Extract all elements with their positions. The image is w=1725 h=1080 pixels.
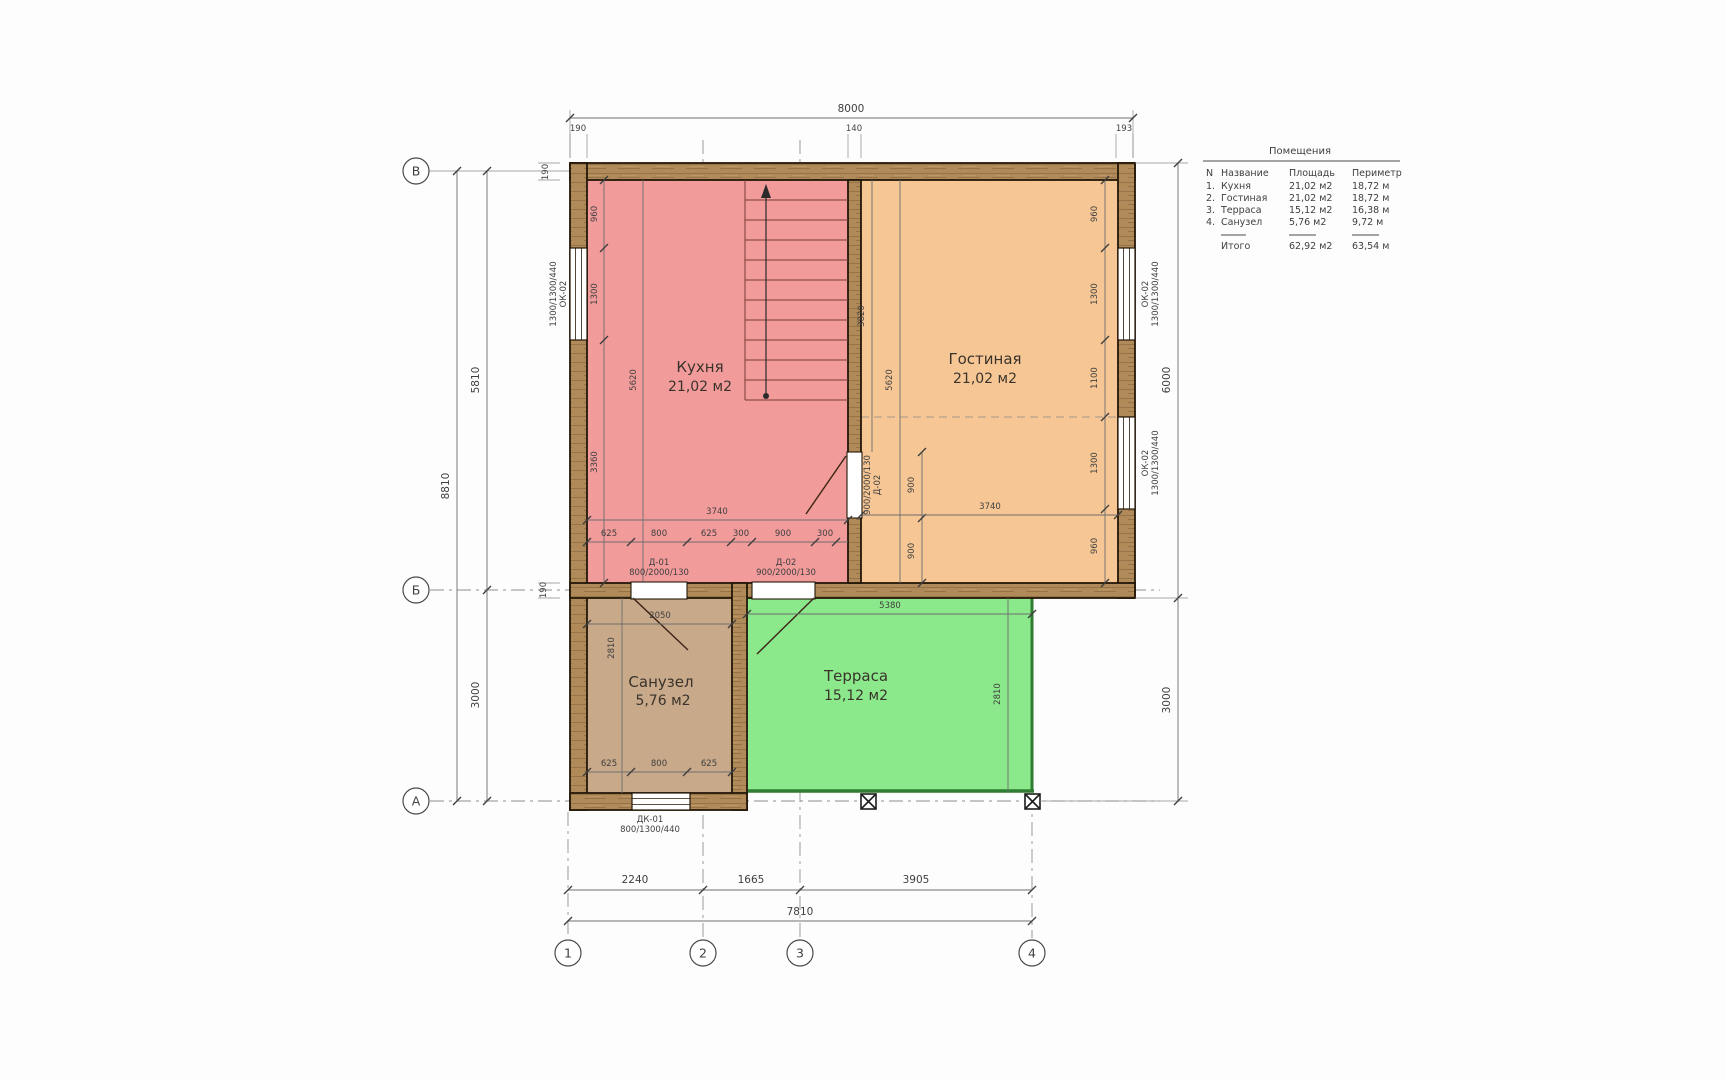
table-row: 3. Терраса 15,12 м2 16,38 м	[1206, 205, 1389, 216]
svg-text:3.: 3.	[1206, 205, 1215, 216]
terrace-columns	[861, 794, 1040, 809]
door-bath-size: 800/2000/130	[629, 568, 689, 578]
svg-text:21,02 м2: 21,02 м2	[1289, 181, 1332, 192]
dim-right-6000: 6000	[1161, 367, 1173, 394]
window-bath-mark: ДК-01	[637, 815, 664, 825]
floor-plan-drawing: 8000 190 140 193 8810 5810 3000 190 190	[0, 0, 1725, 1080]
svg-text:15,12 м2: 15,12 м2	[1289, 205, 1332, 216]
dim-k-1300: 1300	[590, 283, 600, 305]
terrace-area: 15,12 м2	[824, 688, 888, 704]
dim-b-2810: 2810	[607, 637, 617, 659]
bathroom-name: Санузел	[628, 673, 693, 691]
window-bathroom	[632, 793, 690, 810]
svg-text:1.: 1.	[1206, 181, 1215, 192]
dim-k-3740: 3740	[706, 507, 728, 517]
table-col-perimeter: Периметр	[1352, 168, 1402, 179]
dimensions-left: 8810 5810 3000 190 190	[440, 163, 560, 805]
column-post-icon	[861, 794, 876, 809]
window-right-bottom-size: 1300/1300/440	[1151, 430, 1161, 495]
window-bath-size: 800/1300/440	[620, 825, 680, 835]
rooms-table: Помещения N Название Площадь Периметр 1.…	[1203, 146, 1402, 252]
dim-t-2810: 2810	[993, 683, 1003, 705]
table-row: 4. Санузел 5,76 м2 9,72 м	[1206, 217, 1383, 228]
dim-r-1300a: 1300	[1090, 283, 1100, 305]
dim-r-960b: 960	[1090, 538, 1100, 554]
dim-k-625a: 625	[601, 529, 617, 539]
dim-bot-7810: 7810	[787, 906, 814, 918]
window-right-top-mark: ОК-02	[1141, 281, 1151, 308]
svg-text:9,72 м: 9,72 м	[1352, 217, 1383, 228]
kitchen-area: 21,02 м2	[668, 379, 732, 395]
dim-r-1300b: 1300	[1090, 452, 1100, 474]
table-total-perimeter: 63,54 м	[1352, 241, 1389, 252]
table-row: 2. Гостиная 21,02 м2 18,72 м	[1206, 193, 1389, 204]
window-right-bottom-mark: ОК-02	[1141, 450, 1151, 477]
terrace-name: Терраса	[823, 667, 888, 685]
window-right-top-size: 1300/1300/440	[1151, 261, 1161, 326]
axis-row-top-label: В	[412, 164, 421, 179]
dim-k-960: 960	[590, 206, 600, 222]
svg-text:21,02 м2: 21,02 м2	[1289, 193, 1332, 204]
dim-k-5620: 5620	[629, 369, 639, 391]
dim-right-3000: 3000	[1161, 687, 1173, 714]
door-living-mark: Д-02	[873, 475, 883, 496]
axis-row-bot-label: А	[412, 794, 421, 809]
wall-right	[1118, 163, 1135, 598]
dim-b-625a: 625	[601, 759, 617, 769]
svg-text:Кухня: Кухня	[1221, 181, 1251, 192]
dim-l-900b: 900	[907, 543, 917, 559]
dim-b-2050: 2050	[649, 611, 671, 621]
dim-r-1100: 1100	[1090, 367, 1100, 389]
axis-row-mid-label: Б	[412, 583, 421, 598]
door-terrace-mark: Д-02	[776, 558, 797, 568]
door-bath-mark: Д-01	[649, 558, 670, 568]
dim-t-5380: 5380	[879, 601, 901, 611]
window-right-top	[1118, 248, 1135, 340]
dim-l-3740: 3740	[979, 502, 1001, 512]
axis-col-2-label: 2	[699, 946, 707, 961]
floor-plan-sheet: 8000 190 140 193 8810 5810 3000 190 190	[0, 0, 1725, 1080]
svg-text:18,72 м: 18,72 м	[1352, 181, 1389, 192]
dim-top-193: 193	[1116, 124, 1132, 134]
living-area: 21,02 м2	[953, 371, 1017, 387]
dim-left-190-mid: 190	[539, 582, 549, 598]
table-title: Помещения	[1269, 146, 1331, 157]
door-terrace-size: 900/2000/130	[756, 568, 816, 578]
wall-partition-kitchen-living	[848, 180, 861, 583]
living-name: Гостиная	[948, 350, 1021, 368]
window-right-bottom	[1118, 417, 1135, 509]
axis-col-4-label: 4	[1028, 946, 1036, 961]
svg-text:Терраса: Терраса	[1220, 205, 1262, 216]
dim-left-3000: 3000	[470, 682, 482, 709]
terrace-room	[747, 598, 1032, 791]
table-col-name: Название	[1221, 168, 1269, 179]
dim-left-8810: 8810	[440, 473, 452, 500]
column-post-icon	[1025, 794, 1040, 809]
dim-k-800: 800	[651, 529, 667, 539]
table-col-area: Площадь	[1289, 168, 1335, 179]
dim-left-190-top: 190	[541, 164, 551, 180]
dim-k-625b: 625	[701, 529, 717, 539]
dim-l-3820: 3820	[857, 305, 867, 327]
dim-k-300a: 300	[733, 529, 749, 539]
dim-bot-2240: 2240	[622, 874, 649, 886]
dim-bot-3905: 3905	[903, 874, 930, 886]
table-total-row: Итого 62,92 м2 63,54 м	[1221, 235, 1389, 252]
svg-text:Санузел: Санузел	[1221, 217, 1262, 228]
dim-bot-1665: 1665	[738, 874, 765, 886]
axis-col-1-label: 1	[564, 946, 572, 961]
dim-k-3360: 3360	[590, 451, 600, 473]
window-left-size: 1300/1300/440	[549, 261, 559, 326]
dim-left-5810: 5810	[470, 367, 482, 394]
bathroom-area: 5,76 м2	[635, 693, 690, 709]
table-row: 1. Кухня 21,02 м2 18,72 м	[1206, 181, 1389, 192]
window-left	[570, 248, 587, 340]
svg-text:18,72 м: 18,72 м	[1352, 193, 1389, 204]
dim-l-5620: 5620	[885, 369, 895, 391]
axis-col-3-label: 3	[796, 946, 804, 961]
table-total-label: Итого	[1221, 241, 1250, 252]
svg-text:16,38 м: 16,38 м	[1352, 205, 1389, 216]
dim-top-total: 8000	[838, 103, 865, 115]
dimensions-top: 8000 190 140 193	[566, 103, 1137, 158]
dim-top-190: 190	[570, 124, 586, 134]
window-left-mark: ОК-02	[559, 281, 569, 308]
dim-r-960a: 960	[1090, 206, 1100, 222]
dim-k-300b: 300	[817, 529, 833, 539]
table-total-area: 62,92 м2	[1289, 241, 1332, 252]
svg-text:2.: 2.	[1206, 193, 1215, 204]
table-col-n: N	[1206, 168, 1213, 179]
dim-b-625b: 625	[701, 759, 717, 769]
dim-b-800: 800	[651, 759, 667, 769]
svg-text:4.: 4.	[1206, 217, 1215, 228]
kitchen-name: Кухня	[676, 358, 723, 376]
dim-l-900a: 900	[907, 477, 917, 493]
svg-text:Гостиная: Гостиная	[1221, 193, 1267, 204]
dim-k-900: 900	[775, 529, 791, 539]
wall-top	[570, 163, 1135, 180]
door-living-size: 900/2000/130	[863, 455, 873, 515]
dim-top-140: 140	[846, 124, 862, 134]
svg-text:5,76 м2: 5,76 м2	[1289, 217, 1326, 228]
